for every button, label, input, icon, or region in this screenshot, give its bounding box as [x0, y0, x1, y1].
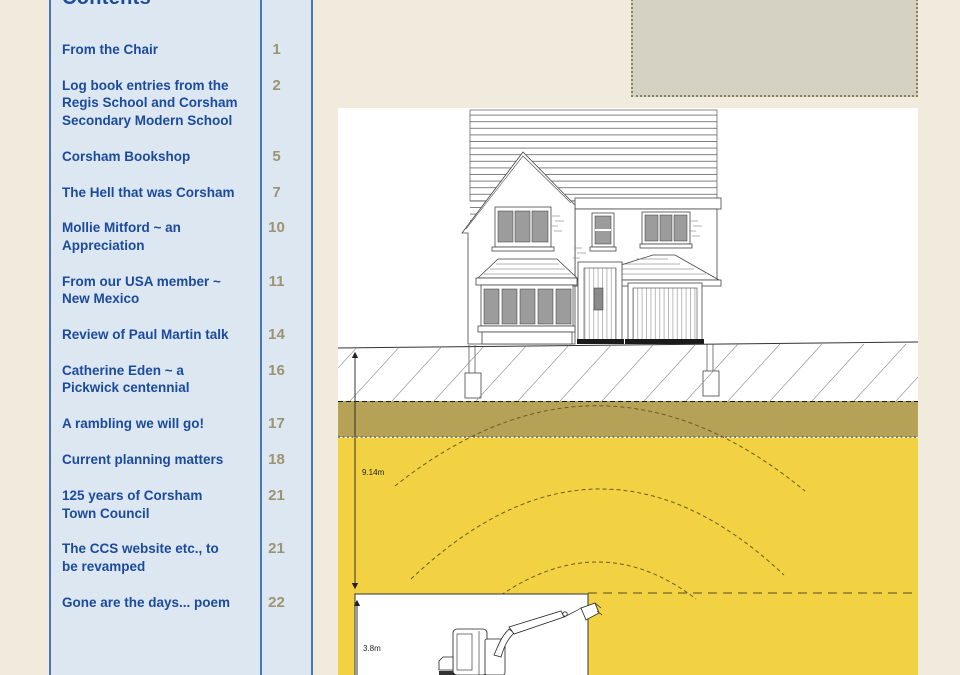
toc-item-title: Review of Paul Martin talk	[51, 326, 250, 343]
garage-door	[625, 283, 704, 344]
toc-row: 125 years of Corsham Town Council21	[51, 487, 311, 522]
toc-row: A rambling we will go!17	[51, 415, 311, 432]
toc-row: Current planning matters18	[51, 451, 311, 468]
toc-row: From the Chair1	[51, 41, 311, 58]
toc-item-page: 5	[250, 148, 303, 165]
toc-item-title: 125 years of Corsham Town Council	[51, 487, 250, 522]
toc-item-title: Log book entries from the Regis School a…	[51, 77, 250, 129]
toc-item-title: A rambling we will go!	[51, 415, 250, 432]
toc-row: From our USA member ~ New Mexico11	[51, 273, 311, 308]
toc-row: The Hell that was Corsham7	[51, 184, 311, 201]
depth-dimension-label: 9.14m	[362, 468, 385, 477]
toc-item-title: The Hell that was Corsham	[51, 184, 250, 201]
toc-item-title: Corsham Bookshop	[51, 148, 250, 165]
toc-item-title: From the Chair	[51, 41, 250, 58]
toc-item-page: 21	[250, 540, 303, 575]
narrow-window	[590, 213, 616, 251]
machine-height-dimension-label: 3.8m	[363, 644, 381, 653]
toc-item-page: 22	[250, 594, 303, 611]
house-elevation	[462, 110, 721, 398]
contents-panel: Contents From the Chair1 Log book entrie…	[49, 0, 313, 675]
toc-item-page: 1	[250, 41, 303, 58]
gable-window	[492, 207, 554, 251]
toc-item-page: 11	[250, 273, 303, 308]
toc-item-title: Catherine Eden ~ a Pickwick centennial	[51, 362, 250, 397]
photo-placeholder-box	[631, 0, 918, 97]
toc-item-page: 21	[250, 487, 303, 522]
toc-row: Review of Paul Martin talk14	[51, 326, 311, 343]
site-section-drawing: 9.14m 3.8m	[338, 108, 918, 675]
toc-row: Gone are the days... poem22	[51, 594, 311, 611]
newsletter-page: Contents From the Chair1 Log book entrie…	[0, 0, 960, 675]
bay-window	[476, 259, 577, 344]
toc-item-title: Gone are the days... poem	[51, 594, 250, 611]
toc-row: Log book entries from the Regis School a…	[51, 77, 311, 129]
toc-item-title: Current planning matters	[51, 451, 250, 468]
toc-item-page: 16	[250, 362, 303, 397]
toc-row: The CCS website etc., to be revamped21	[51, 540, 311, 575]
toc-item-title: The CCS website etc., to be revamped	[51, 540, 250, 575]
three-pane-window	[640, 212, 692, 248]
toc-item-page: 18	[250, 451, 303, 468]
toc-item-page: 7	[250, 184, 303, 201]
toc-item-page: 2	[250, 77, 303, 129]
toc-row: Corsham Bookshop5	[51, 148, 311, 165]
ground-surface-hatch	[338, 342, 918, 401]
toc-item-title: Mollie Mitford ~ an Appreciation	[51, 219, 250, 254]
toc-row: Catherine Eden ~ a Pickwick centennial16	[51, 362, 311, 397]
toc-item-title: From our USA member ~ New Mexico	[51, 273, 250, 308]
drawing-area: 9.14m 3.8m	[338, 108, 918, 675]
soil-band	[338, 401, 918, 437]
toc-item-page: 17	[250, 415, 303, 432]
toc-item-page: 10	[250, 219, 303, 254]
contents-list: From the Chair1 Log book entries from th…	[51, 41, 311, 630]
toc-item-page: 14	[250, 326, 303, 343]
eaves-fascia	[575, 198, 721, 209]
contents-heading: Contents	[62, 0, 151, 10]
toc-row: Mollie Mitford ~ an Appreciation10	[51, 219, 311, 254]
front-door	[577, 262, 624, 344]
